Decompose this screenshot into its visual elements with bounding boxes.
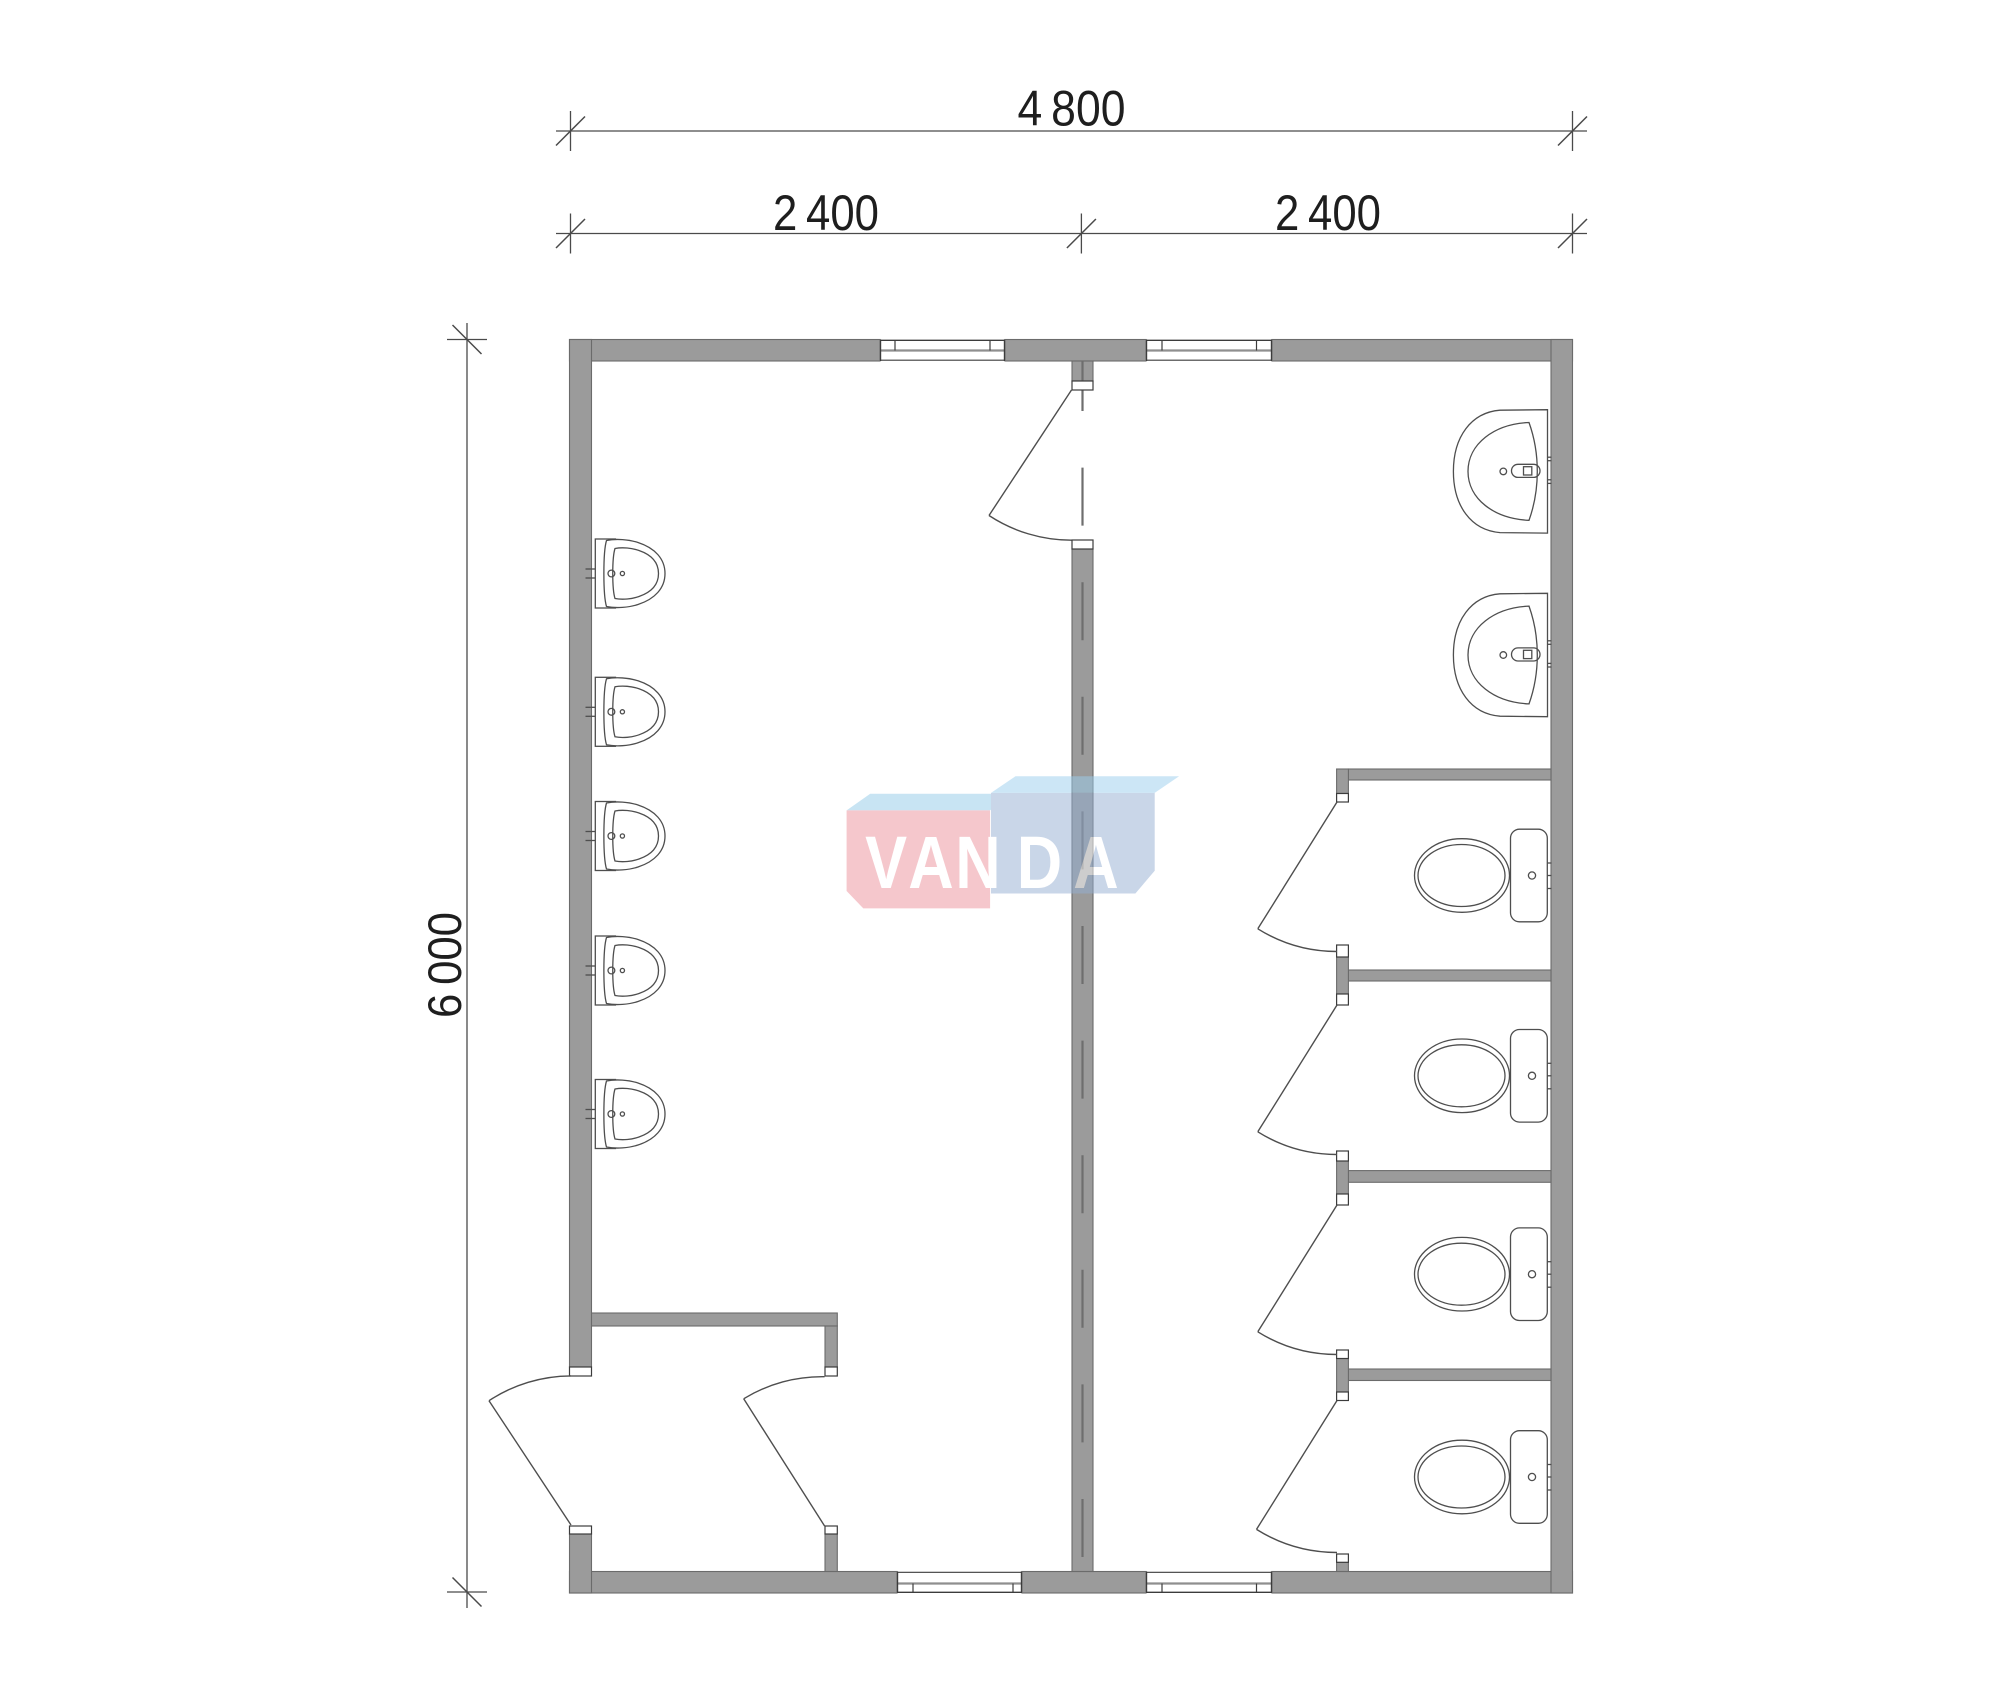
svg-text:2 400: 2 400	[773, 185, 879, 241]
svg-text:2 400: 2 400	[1275, 185, 1381, 241]
svg-text:D: D	[1017, 821, 1062, 904]
svg-text:A: A	[1073, 821, 1118, 904]
svg-text:6 000: 6 000	[418, 912, 471, 1018]
svg-text:4 800: 4 800	[1018, 81, 1126, 137]
svg-text:V: V	[865, 821, 907, 904]
svg-text:N: N	[955, 821, 1000, 904]
svg-text:A: A	[908, 821, 953, 904]
